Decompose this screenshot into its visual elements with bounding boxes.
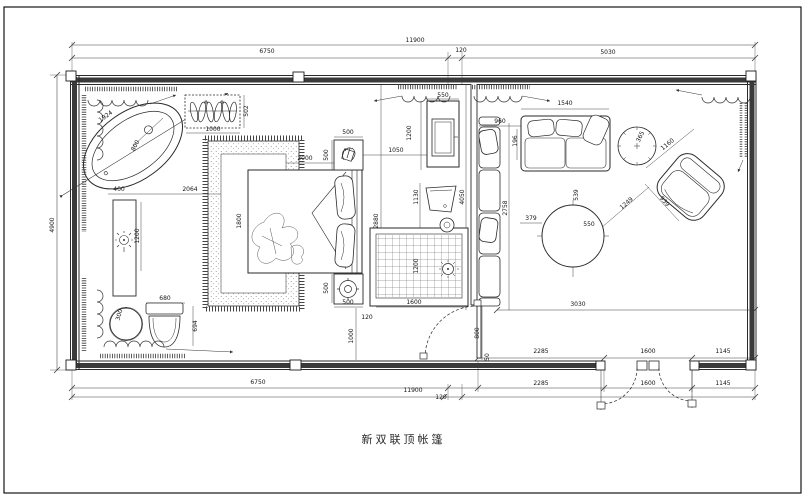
tv-cabinet <box>427 101 459 167</box>
toilet <box>146 303 183 347</box>
side-stool <box>109 307 143 341</box>
shower-room <box>370 228 468 306</box>
curtain-top-middle-right <box>472 87 550 102</box>
curtain-top-middle-left <box>374 87 458 102</box>
wardrobe <box>185 95 240 128</box>
partition-wall <box>471 84 477 305</box>
armchair <box>652 148 730 225</box>
long-sofa <box>478 117 500 306</box>
nightstand-bottom <box>334 274 363 304</box>
curtain-top-left <box>85 89 178 106</box>
double-entry-door <box>597 361 696 410</box>
floor-plan-page: 1190067501205030490019248005021000400206… <box>0 0 807 501</box>
entry-door <box>420 300 481 359</box>
drawing-title: 新双联顶帐篷 <box>0 431 807 447</box>
washbasin <box>426 186 456 232</box>
vanity-counter <box>113 200 136 296</box>
round-table <box>542 205 604 267</box>
dimension-lines <box>50 42 758 400</box>
sofa <box>521 113 611 171</box>
bed <box>248 170 362 273</box>
nightstand-top <box>334 140 363 170</box>
floor-plan-drawing <box>0 0 807 501</box>
side-table <box>618 127 656 165</box>
